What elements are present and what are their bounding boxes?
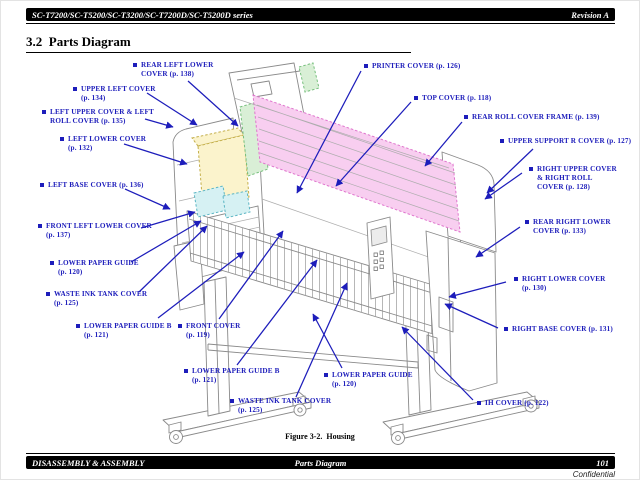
callout-arrow-upper-support-r-cover <box>487 149 533 193</box>
callout-arrow-left-lower-cover <box>124 144 187 164</box>
callout-arrow-right-lower-cover <box>449 282 506 297</box>
callout-arrow-front-left-lower-cover <box>141 212 195 228</box>
callout-arrow-rear-right-lower-cover <box>476 227 520 257</box>
footer-section: Parts Diagram <box>26 458 615 468</box>
arrow-layer <box>1 1 640 481</box>
callout-arrow-left-upper-cover-left-roll-cover <box>145 119 173 127</box>
page-footer-bar: DISASSEMBLY & ASSEMBLY Parts Diagram 101 <box>26 456 615 469</box>
callout-arrow-upper-left-cover <box>147 93 197 125</box>
callout-arrow-top-cover <box>336 102 411 186</box>
callout-arrow-printer-cover <box>297 71 361 193</box>
callout-arrow-waste-ink-tank-cover-center <box>296 283 347 397</box>
callout-arrow-waste-ink-tank-cover-left <box>139 226 207 292</box>
callout-arrow-left-base-cover <box>125 189 170 209</box>
callout-arrow-right-base-cover <box>445 304 498 328</box>
confidential-watermark: Confidential <box>573 470 615 479</box>
callout-arrow-ih-cover <box>402 327 473 400</box>
callout-arrow-rear-left-lower-cover <box>188 81 238 126</box>
manual-page: SC-T7200/SC-T5200/SC-T3200/SC-T7200D/SC-… <box>0 0 640 480</box>
callout-arrow-lower-paper-guide-b-center <box>237 260 317 365</box>
callout-arrow-front-cover <box>219 231 283 319</box>
callout-arrow-rear-roll-cover-frame <box>425 122 462 166</box>
figure-caption: Figure 3-2. Housing <box>1 432 639 441</box>
callout-arrow-lower-paper-guide-bottom <box>313 314 342 368</box>
footer-rule <box>26 453 615 454</box>
